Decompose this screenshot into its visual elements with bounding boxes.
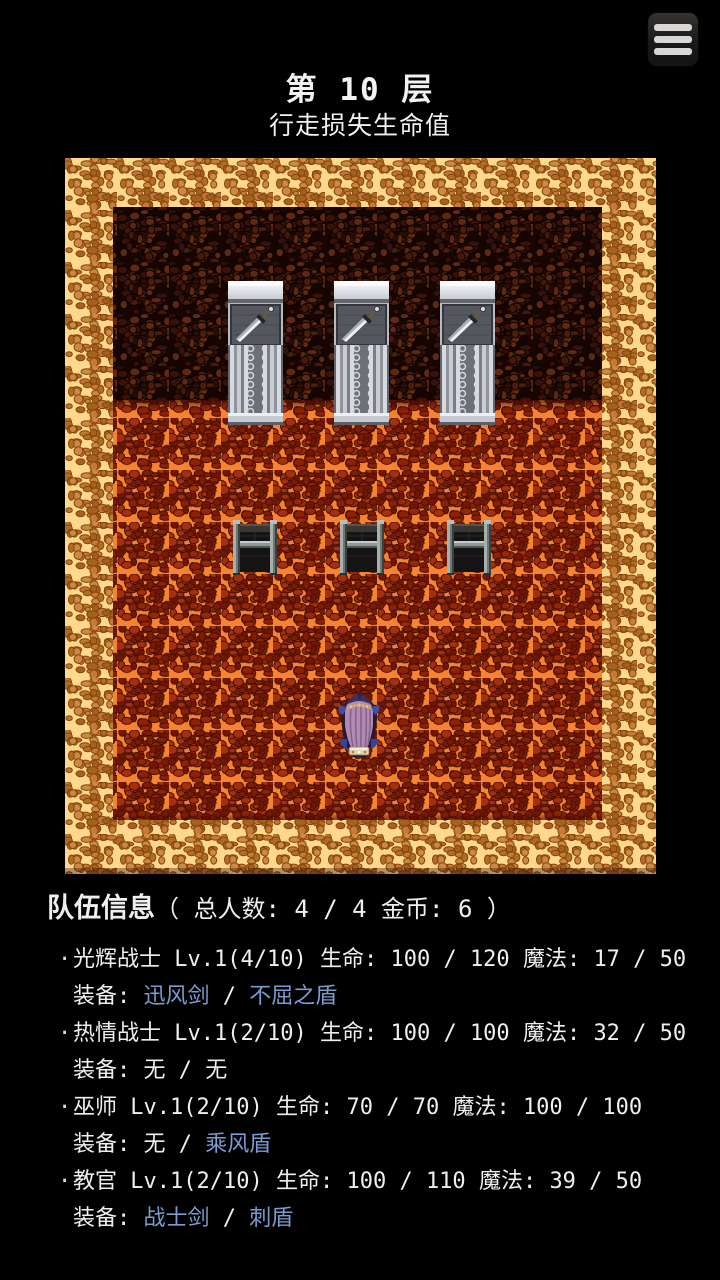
equip-separator: / [223,1206,236,1231]
member-name: 热情战士 [73,1021,161,1046]
hamburger-icon-bar [654,48,692,55]
member-stats-line: 教官 Lv.1(2/10) 生命: 100 / 110 魔法: 39 / 50 [73,1163,642,1200]
equip-separator: / [179,1058,192,1083]
shield-name: 不屈之盾 [249,984,337,1009]
equip-label: 装备: [73,1058,130,1083]
member-bullet: · [47,1163,73,1200]
hp-value: 100 / 110 [346,1169,465,1194]
member-stats-line: 光辉战士 Lv.1(4/10) 生命: 100 / 120 魔法: 17 / 5… [73,941,686,978]
member-equip-row: 装备: 无 / 乘风盾 [47,1126,697,1163]
hp-label: 生命: [276,1095,333,1120]
hp-value: 100 / 100 [390,1021,509,1046]
member-level: Lv.1(2/10) [130,1095,262,1120]
weapon-name: 无 [144,1132,166,1157]
party-member-row: · 教官 Lv.1(2/10) 生命: 100 / 110 魔法: 39 / 5… [47,1163,697,1200]
equip-label: 装备: [73,1132,130,1157]
dungeon-map-canvas[interactable] [65,158,656,874]
party-member-row: · 热情战士 Lv.1(2/10) 生命: 100 / 100 魔法: 32 /… [47,1015,697,1052]
mp-label: 魔法: [523,1021,580,1046]
mp-label: 魔法: [452,1095,509,1120]
map-bottom-shade [65,868,656,874]
member-bullet: · [47,941,73,978]
floor-subtitle: 行走损失生命值 [0,106,720,142]
hamburger-icon-bar [654,24,692,31]
hamburger-icon-bar [654,36,692,43]
dungeon-map[interactable] [65,158,656,874]
member-equip-row: 装备: 无 / 无 [47,1052,697,1089]
equip-label: 装备: [73,1206,130,1231]
shield-name: 刺盾 [249,1206,293,1231]
party-member-row: · 巫师 Lv.1(2/10) 生命: 70 / 70 魔法: 100 / 10… [47,1089,697,1126]
equip-separator: / [223,984,236,1009]
weapon-name: 无 [144,1058,166,1083]
member-stats-line: 巫师 Lv.1(2/10) 生命: 70 / 70 魔法: 100 / 100 [73,1089,642,1126]
party-summary: （ 总人数: 4 / 4 金币: 6 ） [155,895,511,923]
mp-label: 魔法: [479,1169,536,1194]
weapon-name: 战士剑 [144,1206,210,1231]
member-name: 光辉战士 [73,947,161,972]
shield-name: 乘风盾 [205,1132,271,1157]
sword-door-sprite[interactable] [228,281,283,425]
member-bullet: · [47,1089,73,1126]
hp-label: 生命: [320,1021,377,1046]
sword-door-sprite[interactable] [440,281,495,425]
member-equip-row: 装备: 迅风剑 / 不屈之盾 [47,978,697,1015]
sword-door-sprite[interactable] [334,281,389,425]
mp-value: 39 / 50 [549,1169,642,1194]
hp-value: 70 / 70 [346,1095,439,1120]
member-level: Lv.1(2/10) [130,1169,262,1194]
floor-title: 第 10 层 [0,64,720,109]
equip-label: 装备: [73,984,130,1009]
member-level: Lv.1(4/10) [174,947,306,972]
game-screen: { "header": { "title": "第 10 层", "subtit… [0,0,720,1280]
iron-chest-sprite[interactable] [233,520,277,575]
hp-label: 生命: [320,947,377,972]
mp-label: 魔法: [523,947,580,972]
menu-button[interactable] [647,12,699,67]
iron-chest-sprite[interactable] [447,520,491,575]
member-equip-row: 装备: 战士剑 / 刺盾 [47,1200,697,1237]
member-level: Lv.1(2/10) [174,1021,306,1046]
member-bullet: · [47,1015,73,1052]
floor-edge-shade [113,812,602,820]
party-info-header: 队伍信息（ 总人数: 4 / 4 金币: 6 ） [47,893,697,925]
hp-value: 100 / 120 [390,947,509,972]
member-name: 巫师 [73,1095,117,1120]
party-info-panel: 队伍信息（ 总人数: 4 / 4 金币: 6 ） · 光辉战士 Lv.1(4/1… [47,893,697,1237]
member-name: 教官 [73,1169,117,1194]
party-info-title: 队伍信息 [47,893,155,924]
shield-name: 无 [205,1058,227,1083]
mp-value: 100 / 100 [523,1095,642,1120]
equip-separator: / [179,1132,192,1157]
party-member-row: · 光辉战士 Lv.1(4/10) 生命: 100 / 120 魔法: 17 /… [47,941,697,978]
mp-value: 32 / 50 [593,1021,686,1046]
hp-label: 生命: [276,1169,333,1194]
mp-value: 17 / 50 [593,947,686,972]
weapon-name: 迅风剑 [144,984,210,1009]
iron-chest-sprite[interactable] [340,520,384,575]
member-stats-line: 热情战士 Lv.1(2/10) 生命: 100 / 100 魔法: 32 / 5… [73,1015,686,1052]
